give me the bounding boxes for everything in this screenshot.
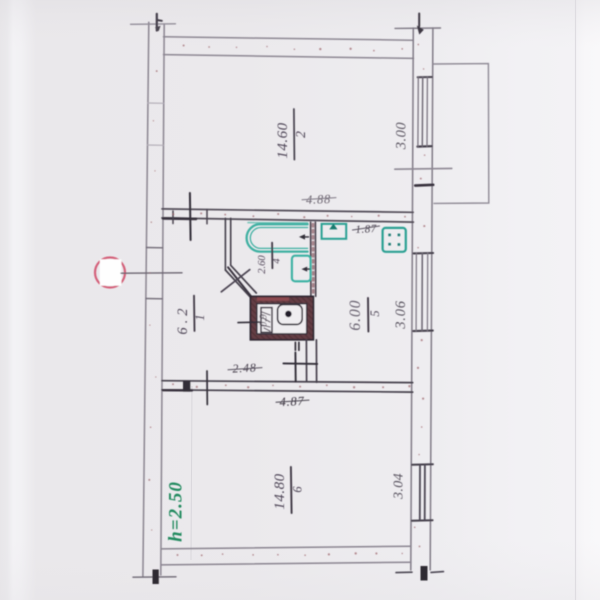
svg-text:4: 4: [272, 258, 283, 264]
svg-text:3.04: 3.04: [392, 473, 407, 500]
svg-text:2: 2: [293, 131, 308, 138]
svg-text:6.00: 6.00: [347, 299, 364, 330]
svg-text:1: 1: [193, 314, 207, 320]
svg-text:6: 6: [291, 486, 305, 493]
svg-text:h=2.50: h=2.50: [166, 481, 187, 542]
svg-text:14.60: 14.60: [275, 122, 291, 158]
svg-text:2.60: 2.60: [257, 255, 268, 274]
svg-text:5: 5: [368, 310, 382, 316]
svg-text:3.00: 3.00: [394, 122, 410, 151]
svg-text:14.80: 14.80: [272, 473, 288, 509]
svg-text:6.2: 6.2: [175, 304, 191, 334]
svg-text:3.06: 3.06: [393, 300, 409, 330]
svg-text:0.9: 0.9: [258, 314, 269, 327]
